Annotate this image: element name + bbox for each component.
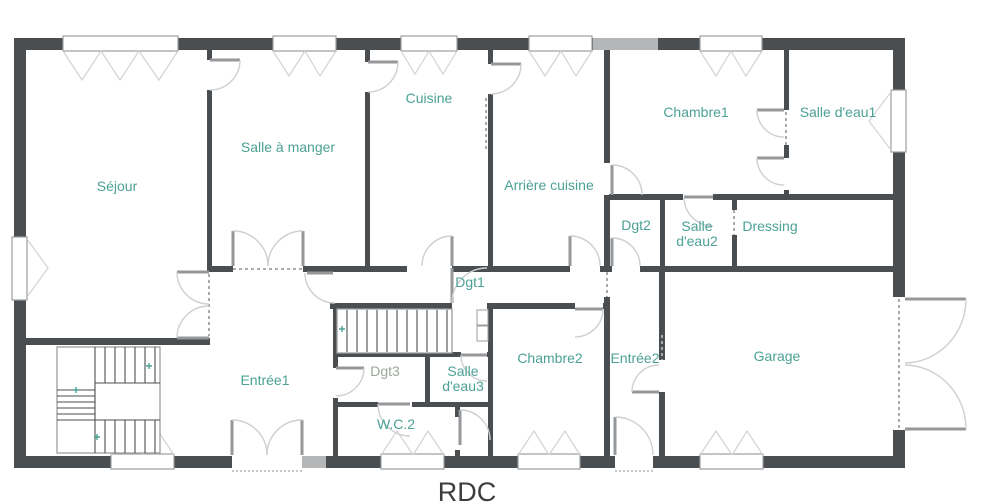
window-chambre2-bottom xyxy=(518,431,580,469)
window-wc2-bottom xyxy=(381,431,444,469)
window-cuisine-top xyxy=(401,36,457,74)
room-label-dgt1: Dgt1 xyxy=(455,274,485,290)
window-garage-bottom xyxy=(700,431,763,469)
room-label-salle-deau3-line1: Salle xyxy=(447,363,478,379)
room-label-garage: Garage xyxy=(754,348,801,364)
room-label-arriere-cuisine: Arrière cuisine xyxy=(504,177,594,193)
room-label-dressing: Dressing xyxy=(742,218,797,234)
window-chambre1-top xyxy=(700,36,762,76)
room-label-dgt2: Dgt2 xyxy=(621,217,651,233)
window-sejour-left xyxy=(12,237,48,300)
room-label-cuisine: Cuisine xyxy=(406,90,453,106)
doors xyxy=(177,60,966,471)
room-label-entree1: Entrée1 xyxy=(240,372,289,388)
room-label-dgt3: Dgt3 xyxy=(370,363,400,379)
window-salle-a-manger-top xyxy=(273,36,336,76)
room-label-wc2: W.C.2 xyxy=(377,416,415,432)
room-label-salle-deau1: Salle d'eau1 xyxy=(800,104,877,120)
staircase-u-shape xyxy=(57,347,160,453)
floor-plan-drawing: Séjour Salle à manger Cuisine Arrière cu… xyxy=(0,0,1000,502)
room-label-entree2: Entrée2 xyxy=(610,350,659,366)
window-salle-deau1-right xyxy=(869,90,906,152)
room-label-salle-deau2-line1: Salle xyxy=(681,218,712,234)
room-label-salle-a-manger: Salle à manger xyxy=(241,139,336,155)
staircase-straight xyxy=(337,309,452,353)
room-label-salle-deau3-line2: d'eau3 xyxy=(442,378,484,394)
floor-plan-page: Séjour Salle à manger Cuisine Arrière cu… xyxy=(0,0,1000,502)
floor-level-title: RDC xyxy=(438,477,497,502)
room-label-chambre2: Chambre2 xyxy=(517,350,583,366)
window-arriere-cuisine-top xyxy=(529,36,592,76)
room-label-chambre1: Chambre1 xyxy=(663,104,729,120)
room-label-sejour: Séjour xyxy=(97,178,138,194)
bathroom-fixture xyxy=(477,310,488,341)
window-sejour-top xyxy=(63,36,178,80)
room-label-salle-deau2-line2: d'eau2 xyxy=(676,233,718,249)
